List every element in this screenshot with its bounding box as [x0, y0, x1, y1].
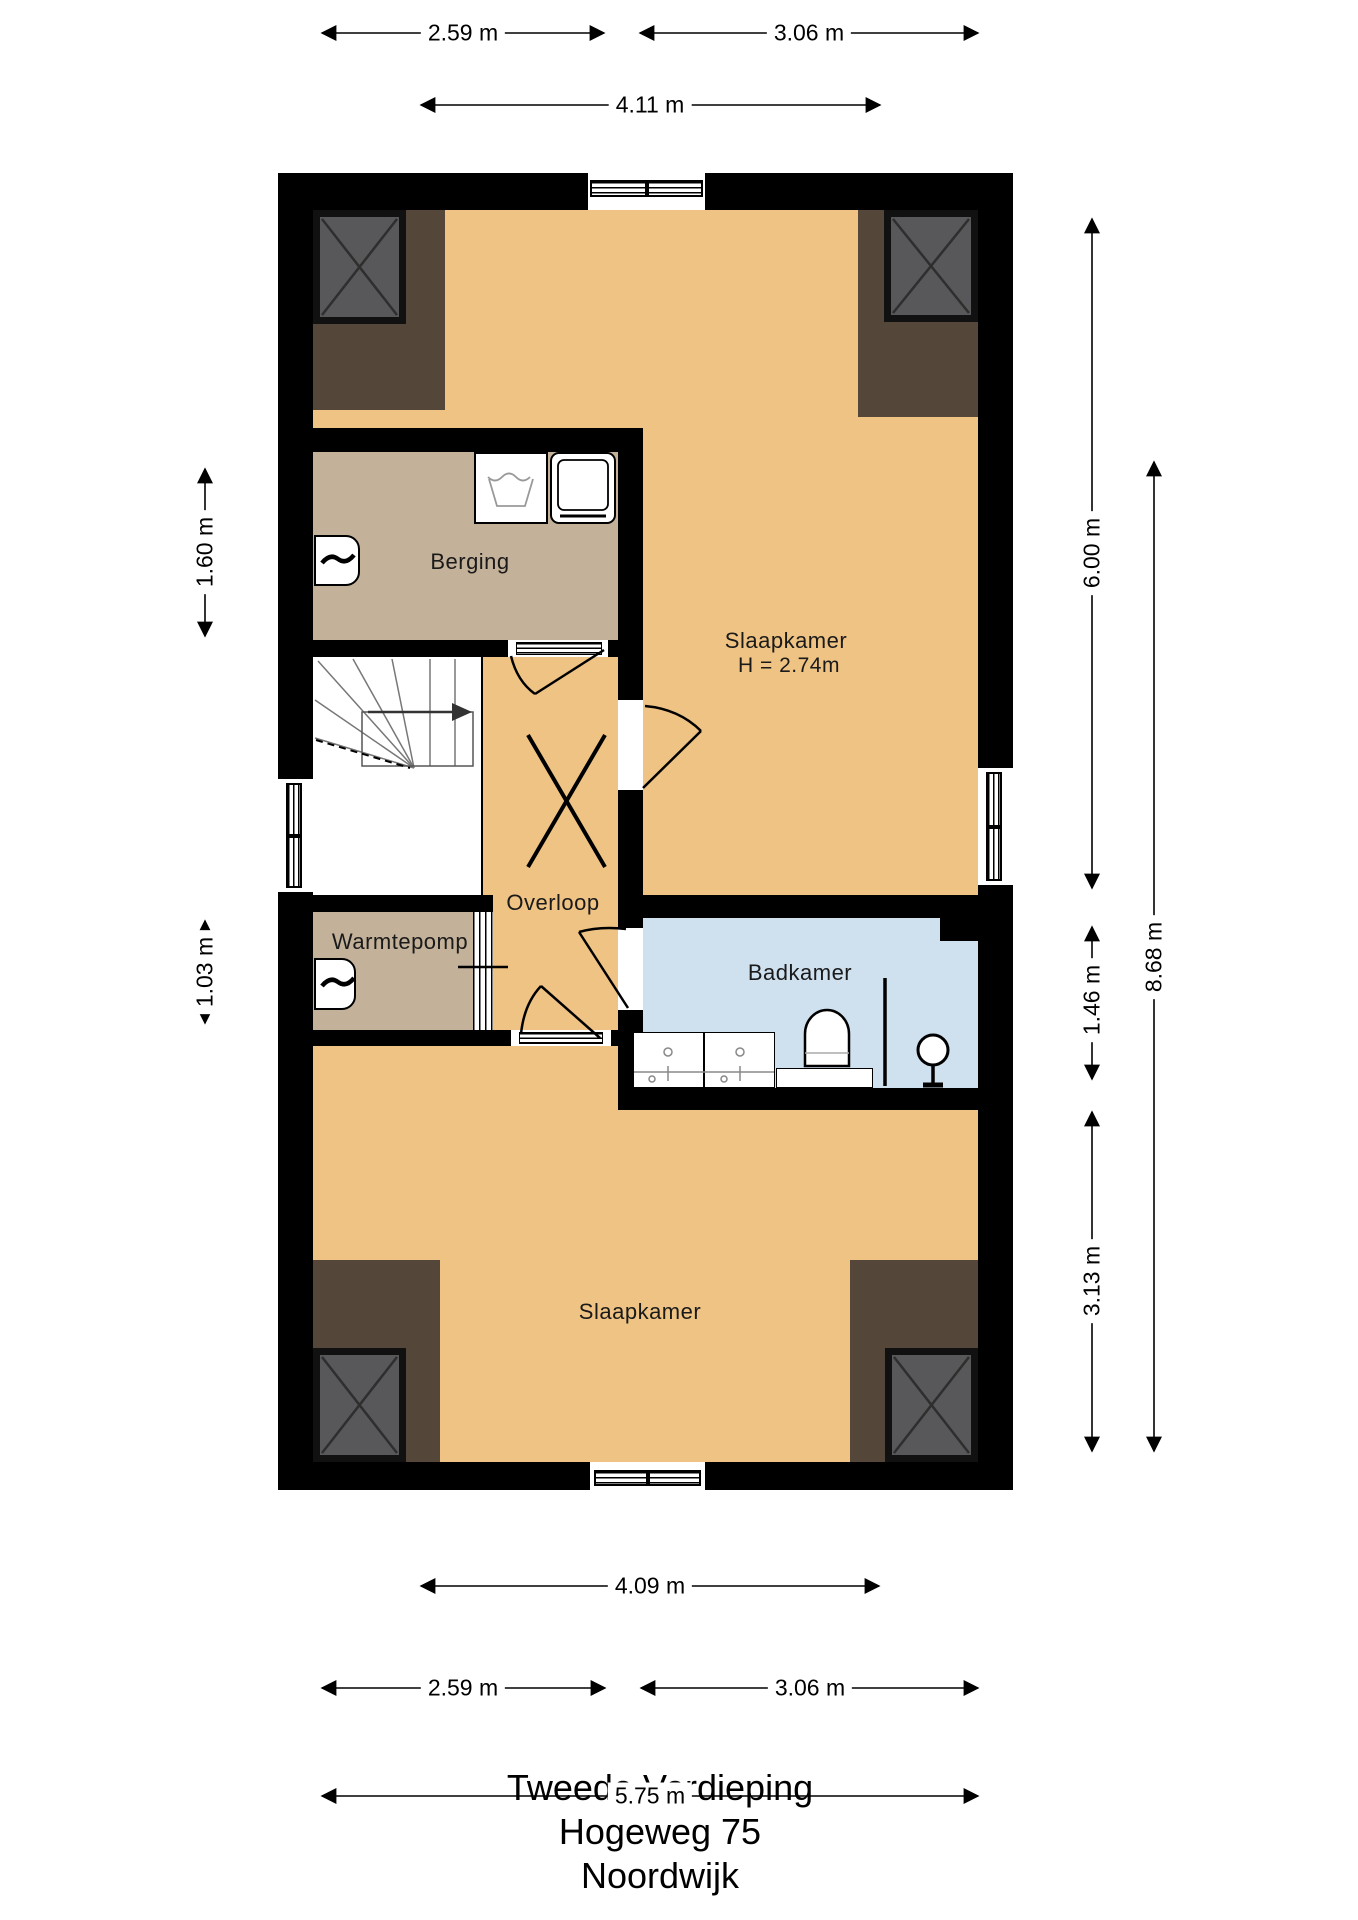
shaft-box-bottom-left: [313, 1348, 406, 1462]
window-left-divider: [288, 834, 300, 838]
room-label-overloop: Overloop: [506, 890, 599, 916]
room-label-berging: Berging: [430, 549, 509, 575]
wall-badkamer-top: [643, 895, 1013, 918]
toilet-shelf: [776, 1068, 873, 1088]
door-opening-badkamer: [618, 928, 643, 1010]
stairwell-void: [313, 657, 481, 897]
bathroom-sink-right: [704, 1032, 775, 1088]
dim-right-top: 6.00 m: [1079, 511, 1106, 595]
dim-bottom-right: 3.06 m: [768, 1675, 852, 1702]
room-label-warmtepomp: Warmtepomp: [332, 929, 468, 955]
window-bottom-divider: [646, 1472, 650, 1484]
room-overloop-floor: [483, 657, 618, 1030]
window-top-divider: [645, 182, 649, 195]
shaft-box-top-left: [313, 210, 406, 324]
dim-top-right: 3.06 m: [767, 20, 851, 47]
room-label-badkamer: Badkamer: [748, 960, 852, 986]
dim-top-left: 2.59 m: [421, 20, 505, 47]
radiator-berging: [314, 535, 360, 586]
dim-bottom-inner: 4.09 m: [608, 1573, 692, 1600]
dim-right-bottom: 3.13 m: [1079, 1239, 1106, 1323]
dim-right-total: 8.68 m: [1141, 915, 1168, 999]
warmtepomp-partition: [473, 912, 493, 1030]
door-threshold-slaapkamer-bottom: [519, 1032, 603, 1044]
wall-warmtepomp-top: [278, 895, 493, 912]
dim-left-upper: 1.60 m: [192, 510, 219, 594]
shaft-box-top-right: [884, 210, 978, 322]
wall-badkamer-notch: [940, 918, 978, 941]
room-label-slaapkamer-top-height: H = 2.74m: [738, 654, 840, 678]
window-bottom: [594, 1470, 701, 1486]
dim-top-inner: 4.11 m: [609, 92, 692, 119]
window-left: [286, 783, 302, 888]
title-street: Hogeweg 75: [507, 1810, 813, 1854]
dim-bottom-total: 5.75 m: [608, 1783, 692, 1810]
room-label-slaapkamer-top: Slaapkamer: [725, 628, 847, 654]
dryer-box: [550, 452, 616, 524]
title-city: Noordwijk: [507, 1854, 813, 1898]
dim-left-lower: 1.03 m: [192, 930, 219, 1014]
wall-badkamer-bottom: [618, 1088, 1013, 1110]
wall-berging-top: [278, 428, 638, 452]
bathroom-sink-left: [633, 1032, 704, 1088]
window-right-divider: [988, 825, 1000, 829]
window-right: [986, 772, 1002, 881]
washer-box: [474, 452, 548, 524]
door-opening-slaapkamer-top: [618, 700, 643, 790]
window-top: [590, 180, 703, 197]
floor-plan-canvas: Slaapkamer H = 2.74m Berging Overloop Wa…: [0, 0, 1358, 1920]
room-label-slaapkamer-bottom: Slaapkamer: [579, 1299, 701, 1325]
dim-right-middle: 1.46 m: [1079, 958, 1106, 1042]
door-threshold-berging: [516, 642, 602, 655]
shaft-box-bottom-right: [885, 1348, 978, 1462]
dim-bottom-left: 2.59 m: [421, 1675, 505, 1702]
radiator-warmtepomp: [314, 958, 356, 1010]
